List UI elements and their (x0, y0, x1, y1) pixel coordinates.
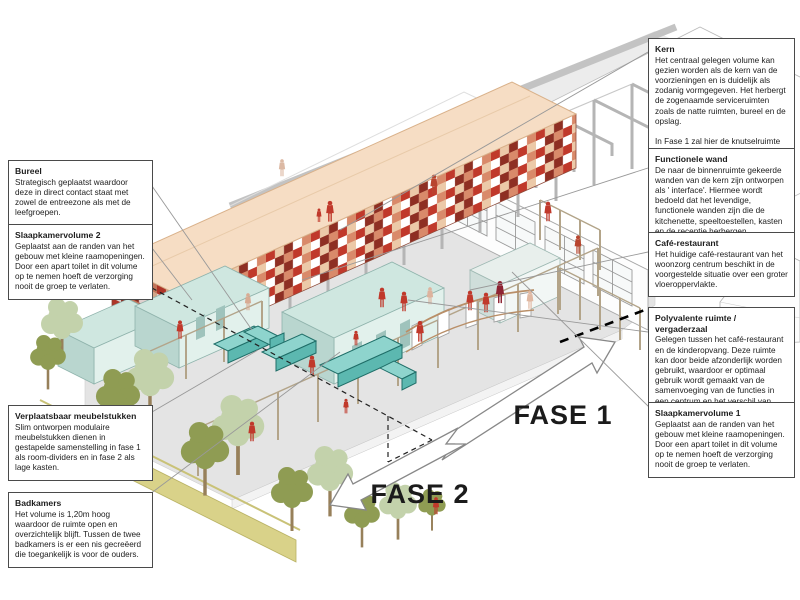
annotation-body: Strategisch geplaatst waardoor deze in d… (15, 178, 146, 219)
annotation-title: Café-restaurant (655, 238, 788, 249)
annotation-bureel: Bureel Strategisch geplaatst waardoor de… (8, 160, 153, 225)
annotation-cafe-restaurant: Café-restaurant Het huidige café-restaur… (648, 232, 795, 297)
annotation-title: Polyvalente ruimte / vergaderzaal (655, 313, 788, 334)
annotation-body: Geplaatst aan de randen van het gebouw m… (15, 242, 146, 293)
annotation-functionele-wand: Functionele wand De naar de binnenruimte… (648, 148, 795, 244)
annotation-title: Slaapkamervolume 2 (15, 230, 146, 241)
annotation-title: Slaapkamervolume 1 (655, 408, 788, 419)
annotation-body: Het volume is 1,20m hoog waardoor de rui… (15, 510, 146, 561)
annotation-verplaatsbaar-meubelstukken: Verplaatsbaar meubelstukken Slim ontworp… (8, 405, 153, 481)
annotation-slaapkamervolume-2: Slaapkamervolume 2 Geplaatst aan de rand… (8, 224, 153, 300)
annotation-title: Functionele wand (655, 154, 788, 165)
diagram-page: FASE 1 FASE 2 Kern Het centraal gelegen … (0, 0, 800, 600)
annotation-body: De naar de binnenruimte gekeerde wanden … (655, 166, 788, 237)
annotation-body: Slim ontworpen modulaire meubelstukken d… (15, 423, 146, 474)
annotation-body: Het huidige café-restaurant van het woon… (655, 250, 788, 291)
fase1-label: FASE 1 (513, 400, 612, 430)
annotation-badkamers: Badkamers Het volume is 1,20m hoog waard… (8, 492, 153, 568)
annotation-slaapkamervolume-1: Slaapkamervolume 1 Geplaatst aan de rand… (648, 402, 795, 478)
annotation-title: Kern (655, 44, 788, 55)
fase2-label: FASE 2 (370, 479, 469, 509)
annotation-body: Geplaatst aan de randen van het gebouw m… (655, 420, 788, 471)
annotation-title: Bureel (15, 166, 146, 177)
annotation-title: Badkamers (15, 498, 146, 509)
annotation-title: Verplaatsbaar meubelstukken (15, 411, 146, 422)
